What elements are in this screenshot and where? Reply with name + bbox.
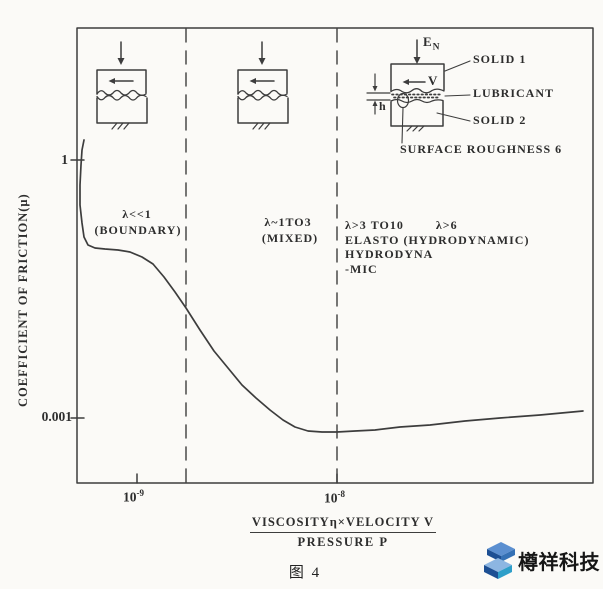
normal-load-label: EN [423,35,440,53]
x-axis-title-denominator: PRESSURE P [250,535,436,550]
region-ehl-lambda1: λ>3 TO10 [345,219,404,232]
solid2-label: SOLID 2 [473,114,526,127]
region-mixed-name: (MIXED) [258,232,322,245]
region-hydro-lambda: λ>6 [436,219,458,232]
normal-load-arrowhead-icon [118,58,125,65]
ground-hatching-icon [112,123,129,129]
leader-line-solid2 [437,113,470,121]
upper-block [97,70,146,94]
normal-load-arrowhead-icon [414,57,421,64]
leader-line-solid1 [445,61,470,71]
x-axis-title-numerator: VISCOSITYη×VELOCITY V [250,515,436,533]
x-tick2-base: 10 [324,491,338,506]
velocity-label: V [428,74,438,88]
y-axis-title: COEFFICIENT OF FRICTION(μ) [16,182,36,418]
region-boundary-lambda: λ<<1 [93,208,181,221]
region-boundary-name: (BOUNDARY) [90,224,186,237]
watermark-logo-icon [484,542,515,579]
lower-block [97,98,147,123]
contact-schematic-boundary [97,42,147,129]
y-tick-label-1: 1 [50,152,68,168]
force-subscript: N [433,43,440,53]
region-mixed-lambda: λ~1TO3 [256,216,320,229]
lower-surface-roughness [391,100,443,103]
stribeck-curve-figure: COEFFICIENT OF FRICTION(μ) 1 0.001 10-9 … [0,0,603,589]
sliding-velocity-arrowhead-icon [109,78,116,84]
contact-schematic-ehl [367,40,470,143]
sliding-velocity-arrowhead-icon [403,79,410,85]
contact-schematic-mixed [238,42,288,129]
friction-curve [80,140,583,432]
force-symbol: E [423,34,433,49]
surface-roughness-label: SURFACE ROUGHNESS 6 [400,143,562,156]
asperity-circle [398,94,409,108]
solid1-label: SOLID 1 [473,53,526,66]
film-thickness-label: h [379,100,387,113]
asperity-interface-lower [97,95,146,100]
lubricant-label: LUBRICANT [473,87,554,100]
leader-line-roughness [402,108,403,143]
upper-surface-roughness [391,89,444,93]
figure-caption: 图 4 [270,561,340,582]
region-ehl-line3: HYDRODYNA [345,248,529,261]
x-tick-label-1e-8: 10-8 [324,489,345,507]
leader-line-lubricant [445,95,470,96]
y-tick-label-0001: 0.001 [28,409,72,425]
x-tick-label-1e-9: 10-9 [123,488,144,506]
region-ehl-annotation: λ>3 TO10 λ>6 ELASTO (HYDRODYNAMIC) HYDRO… [345,219,529,278]
x-tick1-exponent: -9 [137,488,145,498]
region-ehl-lambdas: λ>3 TO10 λ>6 [345,219,529,232]
watermark-text: 樽祥科技 [518,546,600,575]
asperity-interface-upper [97,91,146,96]
x-tick2-exponent: -8 [338,489,346,499]
region-ehl-line2: ELASTO (HYDRODYNAMIC) [345,234,529,247]
region-ehl-line4: -MIC [345,263,529,276]
x-tick1-base: 10 [123,490,137,505]
